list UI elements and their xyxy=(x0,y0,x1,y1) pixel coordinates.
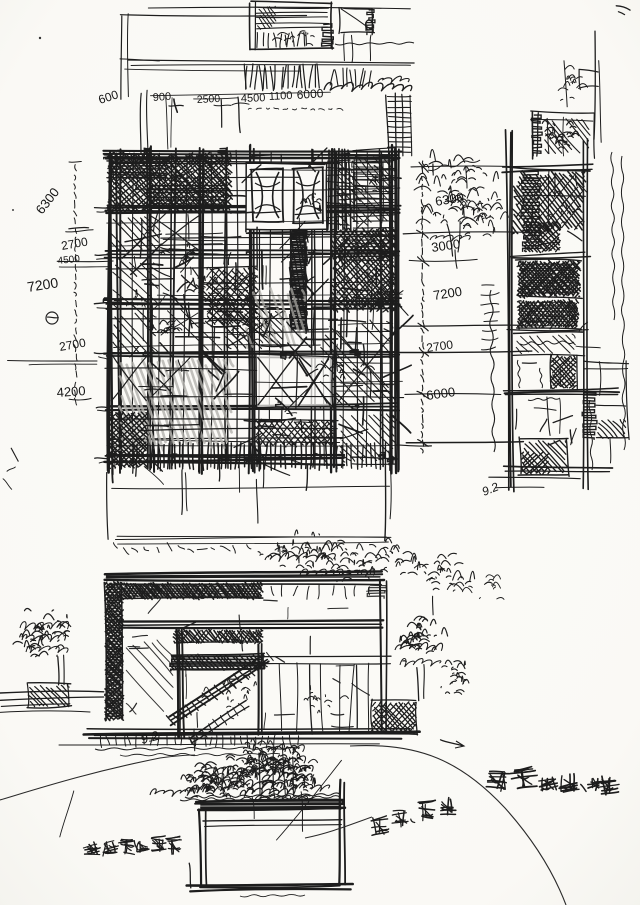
svg-text:1100: 1100 xyxy=(269,90,293,103)
svg-text:900: 900 xyxy=(152,91,171,104)
svg-text:4200: 4200 xyxy=(56,383,86,400)
svg-text:6000: 6000 xyxy=(296,86,324,102)
